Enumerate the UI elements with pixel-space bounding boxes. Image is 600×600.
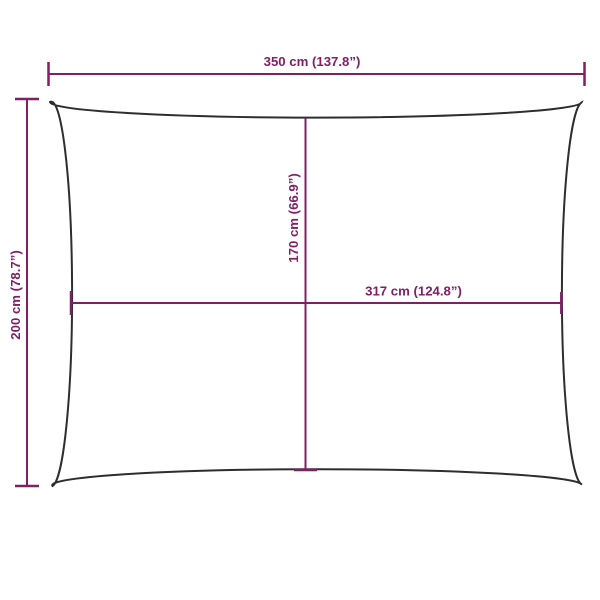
svg-text:350 cm (137.8”): 350 cm (137.8”) (264, 54, 361, 69)
svg-text:200 cm (78.7”): 200 cm (78.7”) (8, 250, 23, 339)
svg-text:170 cm (66.9”): 170 cm (66.9”) (286, 173, 301, 262)
svg-text:317 cm (124.8”): 317 cm (124.8”) (365, 284, 462, 299)
